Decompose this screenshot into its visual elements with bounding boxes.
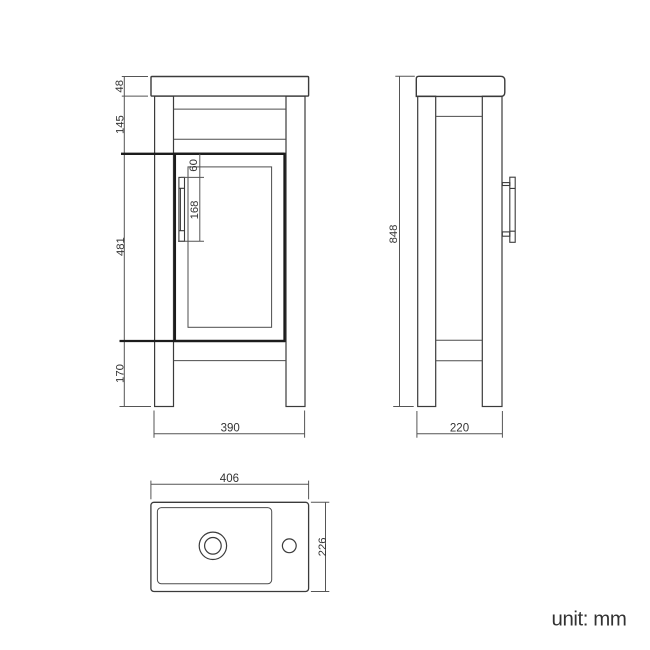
svg-text:220: 220 <box>450 422 469 434</box>
svg-text:48: 48 <box>114 80 126 93</box>
svg-text:406: 406 <box>220 473 239 485</box>
svg-text:unit: mm: unit: mm <box>552 608 627 630</box>
svg-text:848: 848 <box>388 225 400 244</box>
svg-text:170: 170 <box>114 364 126 383</box>
svg-text:60: 60 <box>188 159 200 172</box>
svg-text:226: 226 <box>317 537 329 556</box>
svg-text:168: 168 <box>189 201 201 220</box>
svg-text:390: 390 <box>221 422 240 434</box>
svg-text:481: 481 <box>115 237 127 256</box>
svg-text:145: 145 <box>114 115 126 134</box>
